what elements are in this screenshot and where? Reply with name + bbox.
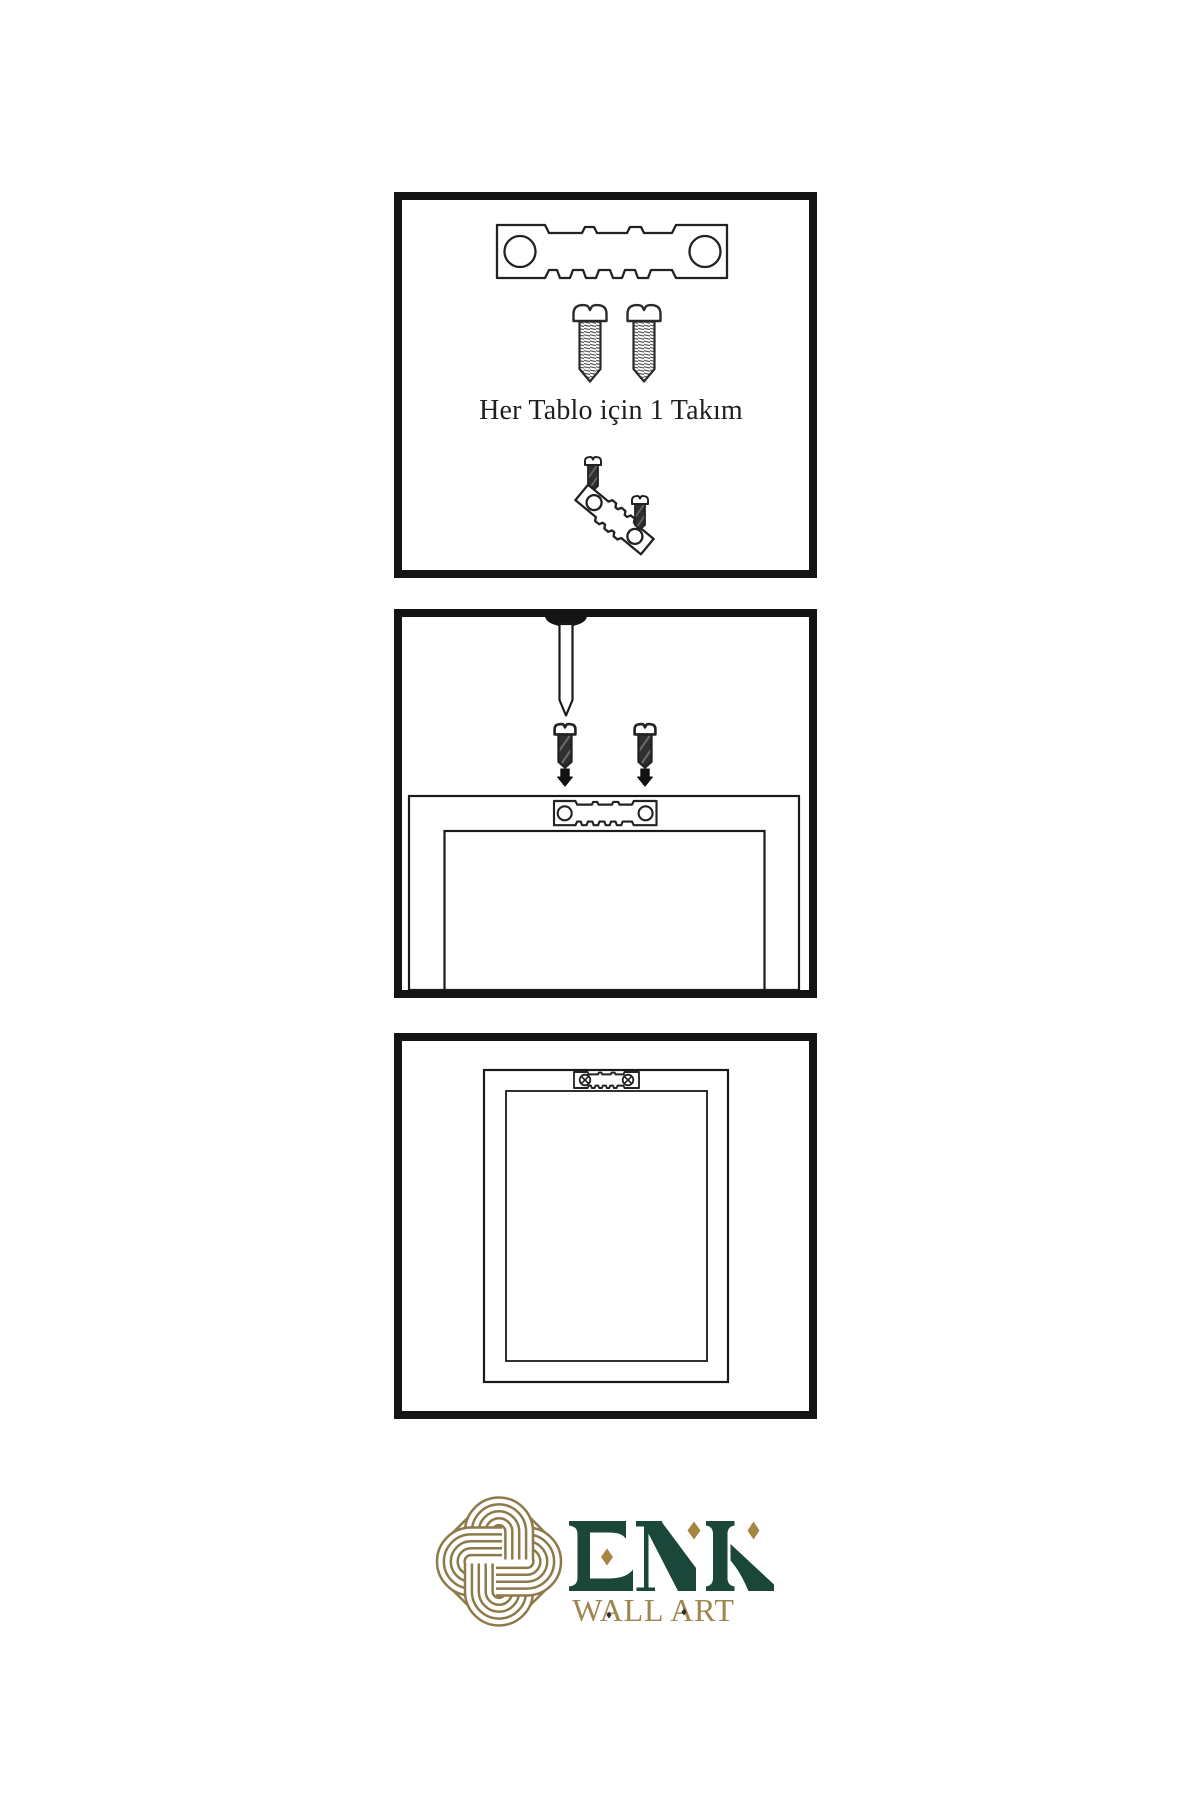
svg-text:WALL ART: WALL ART (572, 1592, 734, 1628)
svg-text:Her Tablo için 1 Takım: Her Tablo için 1 Takım (479, 395, 743, 426)
